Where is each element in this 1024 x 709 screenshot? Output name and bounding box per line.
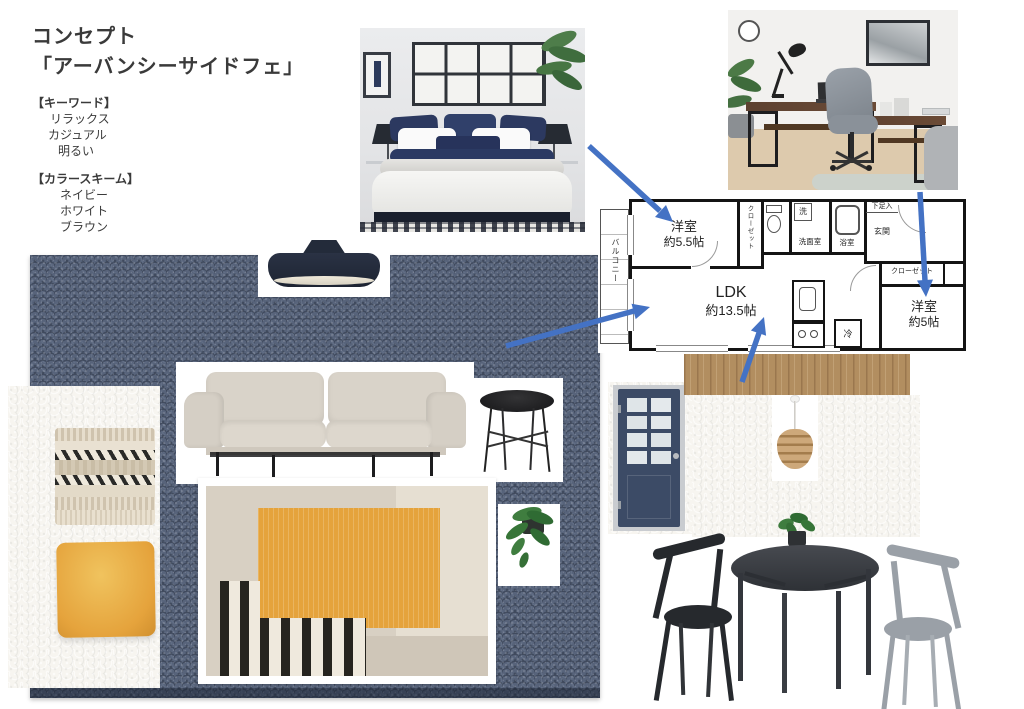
concept-title-line1: コンセプト — [32, 22, 362, 52]
window — [656, 345, 728, 352]
color-item: ブラウン — [60, 219, 362, 235]
sofa-arm — [426, 392, 466, 448]
black-chair-leg — [706, 623, 714, 697]
wall — [943, 261, 945, 287]
plant-decor — [536, 28, 585, 100]
caster — [866, 165, 872, 171]
table-leg — [529, 408, 534, 470]
cushions-photo — [8, 386, 160, 688]
framed-art — [866, 20, 930, 66]
gray-chair-post — [941, 563, 962, 629]
sofa-seat-cushion — [326, 420, 432, 448]
desk-accessory — [880, 102, 892, 116]
floor-plan: バルコニー 洗 冷 — [598, 197, 968, 353]
boho-cushion — [55, 428, 155, 525]
desk-books — [922, 108, 950, 115]
rug-photo — [198, 478, 496, 684]
bedroom1-size: 約5.5帖 — [644, 235, 724, 250]
keyword-item: リラックス — [50, 111, 362, 127]
black-chair-backrest — [652, 532, 726, 561]
desk-leg-frame — [748, 111, 778, 167]
kitchen-counter — [792, 280, 825, 322]
keyword-item: カジュアル — [48, 127, 362, 143]
rug-stripes — [220, 581, 260, 676]
keyword-item: 明るい — [58, 143, 362, 159]
sofa-arm — [184, 392, 224, 448]
washer-icon: 洗 — [794, 203, 812, 221]
black-chair-post — [711, 549, 723, 611]
keywords-header: 【キーワード】 — [32, 94, 362, 111]
table-leg — [501, 408, 506, 470]
plant-vine — [518, 551, 531, 569]
fridge-box: 冷 — [834, 319, 862, 348]
wall — [879, 261, 882, 351]
bedroom2-size: 約5帖 — [886, 315, 962, 330]
rug-base — [206, 486, 488, 676]
gray-chair-leg — [944, 631, 961, 709]
sofa-seat-cushion — [220, 420, 326, 448]
door-hinge — [618, 405, 621, 413]
gray-chair-leg — [930, 635, 938, 707]
caster — [830, 165, 836, 171]
color-item: ホワイト — [60, 203, 362, 219]
balcony-label: バルコニー — [610, 238, 621, 328]
entrance-label: 玄関 — [868, 227, 896, 237]
sofa-leg — [272, 455, 275, 477]
black-chair-leg — [679, 623, 686, 695]
gray-chair-post — [891, 561, 903, 623]
mustard-cushion — [56, 541, 156, 638]
black-chair-leg — [719, 619, 734, 701]
shoebox-label: 下足入 — [866, 203, 898, 213]
table-leg — [484, 406, 493, 472]
dining-table-leg — [836, 591, 841, 689]
sofa-leg — [372, 455, 375, 477]
wall — [710, 266, 764, 269]
pendant-light-photo — [772, 395, 818, 481]
toilet-icon — [767, 215, 781, 233]
dining-set-photo — [632, 505, 992, 705]
ceiling-light-photo — [258, 236, 390, 297]
closet2-label: クローゼット — [884, 268, 940, 277]
moodboard-page: コンセプト 「アーバンシーサイドフェ」 【キーワード】 リラックス カジュアル … — [0, 0, 1024, 709]
wall — [761, 252, 867, 255]
desk-photo — [728, 10, 958, 190]
color-item: ネイビー — [60, 187, 362, 203]
washroom-label: 洗面室 — [789, 237, 831, 246]
window — [627, 215, 634, 255]
window — [627, 279, 634, 331]
pendant-wood-shade — [777, 429, 813, 469]
bedroom1-name: 洋室 — [644, 219, 724, 235]
rug-mustard-block — [258, 508, 440, 628]
colorscheme-header: 【カラースキーム】 — [32, 170, 362, 187]
balcony-area: バルコニー — [600, 209, 629, 344]
wall — [761, 199, 764, 269]
bedroom2-label: 洋室 約5帖 — [886, 299, 962, 330]
gray-chair-leg — [902, 635, 910, 705]
dining-table-leg — [782, 593, 787, 693]
door-glass-grid — [627, 398, 671, 464]
bedroom2-name: 洋室 — [886, 299, 962, 315]
black-chair-leg — [654, 621, 671, 701]
wall — [789, 199, 792, 255]
office-chair-post — [850, 132, 854, 160]
ceiling-light-diffuser — [274, 276, 374, 285]
concept-panel: コンセプト 「アーバンシーサイドフェ」 【キーワード】 リラックス カジュアル … — [32, 22, 362, 235]
ldk-name: LDK — [686, 283, 776, 303]
window-grid — [412, 42, 546, 106]
dining-table-leg — [738, 573, 743, 681]
desk-accessory — [894, 98, 909, 116]
side-table-photo — [473, 378, 563, 482]
sofa-photo — [176, 362, 474, 484]
wall-clock-icon — [738, 20, 760, 42]
concept-title-line2: 「アーバンシーサイドフェ」 — [32, 52, 362, 82]
hanging-plant-photo — [498, 504, 560, 586]
rug-stripes — [260, 618, 366, 676]
gray-chair-leg — [881, 633, 895, 709]
stove-icon — [792, 322, 825, 348]
table-leg — [542, 406, 551, 472]
wall — [879, 284, 966, 287]
ldk-label: LDK 約13.5帖 — [686, 283, 776, 319]
dining-table-top — [731, 545, 879, 591]
ldk-size: 約13.5帖 — [686, 303, 776, 319]
wall-art-frame — [363, 52, 391, 98]
closet-label: クローゼット — [744, 205, 754, 265]
white-duvet — [372, 171, 572, 216]
dining-table-leg — [866, 569, 871, 675]
door-knob — [673, 453, 679, 459]
wood-floor-swatch — [684, 354, 910, 395]
art-detail — [374, 61, 381, 87]
sofa-leg-rail — [210, 452, 440, 457]
carpet-shadow-edge — [30, 688, 600, 698]
ceiling-light-drum — [268, 253, 380, 287]
plaid-rug — [360, 222, 585, 232]
bedroom-photo — [360, 28, 585, 232]
bedroom1-label: 洋室 約5.5帖 — [644, 219, 724, 250]
wall — [629, 266, 691, 269]
bathtub-icon — [835, 205, 860, 235]
pendant-cord — [794, 401, 796, 431]
sink-icon — [799, 287, 816, 311]
armchair-partial — [924, 126, 958, 190]
toilet-icon — [766, 205, 782, 213]
door-hinge — [618, 501, 621, 509]
wall — [737, 199, 740, 269]
bathroom-label: 浴室 — [832, 238, 862, 247]
desk-lamp-head — [786, 41, 807, 59]
